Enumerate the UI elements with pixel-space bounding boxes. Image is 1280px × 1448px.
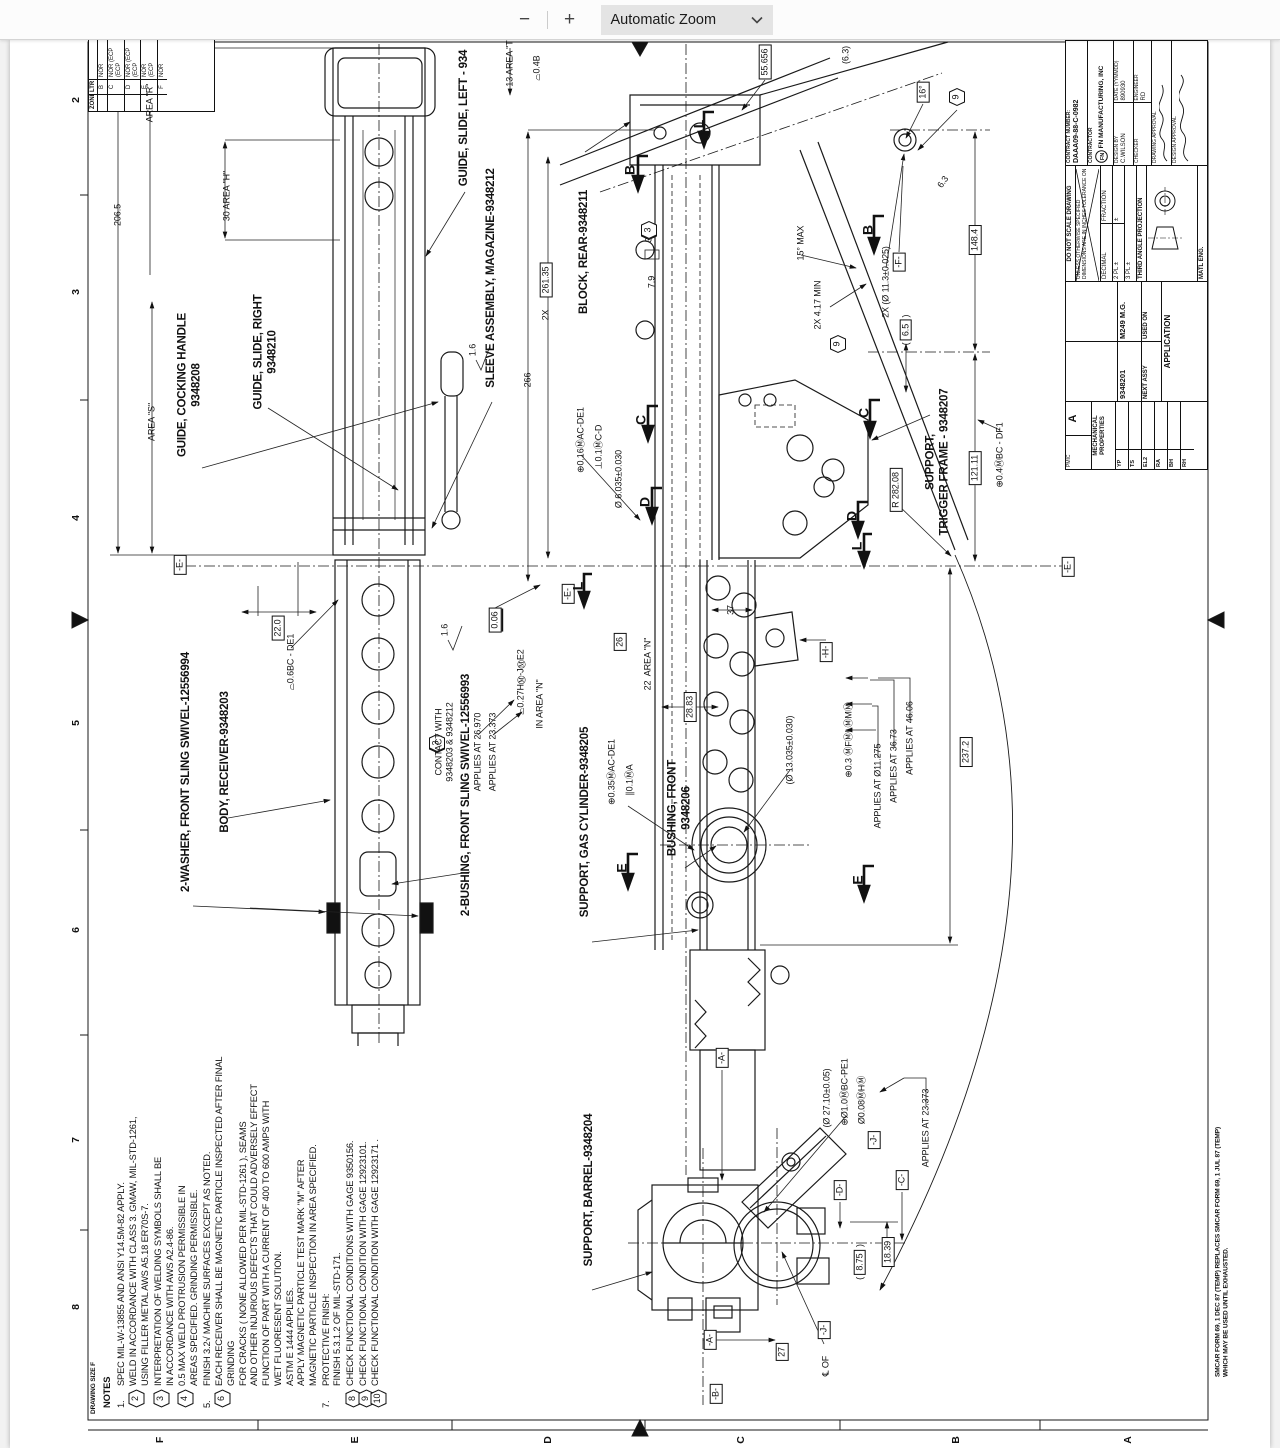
- note-item: 9CHECK FUNCTIONAL CONDITION WITH GAGE 12…: [358, 1046, 370, 1408]
- design-by-value: C.WILSON: [1121, 133, 1127, 163]
- note-flag-hexagon: 3: [153, 1386, 176, 1408]
- engineering-drawing: ZONELTRBNORCNOR (ECP(ECPDNOR (ECP(ECPENO…: [0, 0, 1280, 1448]
- zone-row-label: 8: [70, 1304, 82, 1310]
- datum-h: -H-: [820, 642, 833, 662]
- third-angle-symbol: [1147, 166, 1198, 281]
- note-item: 5.FINISH 3.2√ MACHINE SURFACES EXCEPT AS…: [202, 1046, 214, 1408]
- mech-row: EL2: [1142, 402, 1155, 469]
- pmic-label: PMIC: [1067, 438, 1073, 467]
- datum-d: -D-: [834, 1180, 847, 1200]
- pdf-viewer: − + Automatic Zoom: [0, 0, 1280, 1448]
- pl3-label: 3 PL ±: [1125, 166, 1137, 281]
- contractor-label: CONTRACTOR: [1089, 43, 1095, 163]
- dim-13-035: (Ø 13.035±0.030): [785, 716, 796, 785]
- revision-row: DNOR (ECP(ECP: [125, 39, 142, 111]
- mech-properties-rows: YPTSEL2RABHRH: [1116, 402, 1207, 469]
- datum-j-top: -J-: [868, 1131, 881, 1149]
- dim-22-area-n: 22 AREA "N": [643, 638, 654, 691]
- section-d-left: D: [637, 497, 654, 507]
- revision-row: CNOR (ECP(ECP: [108, 39, 125, 111]
- dim-13-area-t: 13 AREA "T": [505, 37, 516, 86]
- note-item: 6EACH RECEIVER SHALL BE MAGNETIC PARTICL…: [214, 1046, 319, 1408]
- fraction-label: FRACTION: [1101, 166, 1112, 223]
- pm-label: ±: [1113, 166, 1124, 223]
- note-applies-26970: APPLIES AT 26.970: [473, 713, 484, 792]
- section-c-left: C: [633, 415, 650, 425]
- notes-title: NOTES: [102, 1046, 114, 1408]
- design-approval-signature: [1179, 73, 1191, 163]
- zone-col-label: C: [735, 1436, 747, 1443]
- fcf-prof-06: ⌓0.6BC - DE1: [286, 634, 297, 690]
- note-contact: CONTACT WITH 9348203 & 9348212: [433, 702, 454, 781]
- title-block-pmic-section: PMIC A MECHANICAL PROPERTIES YPTSEL2RABH…: [1066, 401, 1207, 469]
- note-applies-23373b: APPLIES AT 23.373: [921, 1089, 932, 1168]
- zoom-level-label: Automatic Zoom: [611, 12, 751, 28]
- part-label-guide-slide-right: GUIDE, SLIDE, RIGHT 9348210: [252, 294, 279, 409]
- pmic-value: A: [1066, 402, 1091, 435]
- mech-row: YP: [1116, 402, 1129, 469]
- fcf-pos-04: ⊕0.4ⓂBC - DF1: [995, 422, 1006, 487]
- note-item: 1.SPEC MIL-W-13855 AND ANSI Y14.5M-82 AP…: [116, 1046, 128, 1408]
- fcf-par-01: ∥0.1ⓂA: [625, 764, 636, 795]
- note-item: 3INTERPRETATION OF WELDING SYMBOLS SHALL…: [153, 1046, 176, 1408]
- zone-col-label: B: [950, 1436, 962, 1443]
- note-cl-of-j: ℄ OF: [821, 1356, 832, 1376]
- part-label-support-trigger: SUPPORT, TRIGGER FRAME - 9348207: [924, 389, 951, 536]
- section-b-right: B: [860, 225, 877, 235]
- datum-f: -F-: [893, 252, 906, 271]
- note-flag-hexagon: 9: [358, 1386, 370, 1408]
- tolerance-note: UNLESS OTHERWISE SPECIFIED DIMENSIONS AR…: [1076, 166, 1101, 281]
- fcf-pos-008: Ø0.08ⓂHⓂ: [857, 1076, 868, 1124]
- finish-1-6-a: 1.6: [440, 624, 451, 636]
- dim-37: 37: [726, 605, 737, 615]
- dim-206-5: 206.5: [113, 204, 124, 226]
- note-flag: 1.: [116, 1386, 128, 1408]
- dim-6-035: Ø 6.035±0.030: [614, 450, 625, 508]
- note-text: INTERPRETATION OF WELDING SYMBOLS SHALL …: [153, 1157, 176, 1386]
- note-text: EACH RECEIVER SHALL BE MAGNETIC PARTICLE…: [214, 1046, 319, 1386]
- note-flag-hexagon: 10: [370, 1386, 382, 1408]
- note-flag: 7.: [321, 1386, 344, 1408]
- matl-eng-label: MATL ENG.: [1198, 166, 1207, 281]
- note-text: FINISH 3.2√ MACHINE SURFACES EXCEPT AS N…: [202, 1152, 214, 1386]
- dim-237-2: 237.2: [960, 737, 973, 767]
- note-flag-hexagon: 4: [177, 1386, 200, 1408]
- contractor-value: FN MANUFACTURING, INC: [1098, 66, 1105, 149]
- toolbar-divider: [547, 11, 548, 29]
- section-c-right: C: [856, 408, 873, 418]
- part-label-block-rear: BLOCK, REAR-9348211: [578, 190, 592, 314]
- dim-261-35: 261.35: [540, 263, 553, 298]
- dim-6-3-ref: (6.3): [841, 46, 852, 64]
- finish-1-6-b: 1.6: [468, 344, 479, 356]
- engineer-value: RD: [1141, 92, 1147, 101]
- zone-row-label: 4: [70, 515, 82, 521]
- zone-row-label: 7: [70, 1137, 82, 1143]
- revision-row: BNOR: [98, 39, 108, 111]
- date-value: 890930: [1121, 80, 1127, 100]
- notes-block: NOTES 1.SPEC MIL-W-13855 AND ANSI Y14.5M…: [102, 1046, 420, 1408]
- dim-55-656: 55.656: [759, 45, 772, 80]
- dim-27-10: (Ø 27.10±0.05): [822, 1068, 833, 1127]
- third-angle-label: THIRD ANGLE PROJECTION: [1137, 166, 1147, 281]
- note-applies-4606: APPLIES AT 46.06: [905, 701, 916, 775]
- title-block-tolerance-section: DO NOT SCALE DRAWING UNLESS OTHERWISE SP…: [1066, 165, 1207, 281]
- drawing-size-note: DRAWING SIZE F: [90, 1362, 98, 1414]
- note-flag-hexagon: 8: [345, 1386, 357, 1408]
- zone-row-label: 5: [70, 720, 82, 726]
- part-label-washer-front-sling: 2-WASHER, FRONT SLING SWIVEL-12556994: [180, 652, 194, 892]
- datum-e-left: -E-: [174, 555, 187, 575]
- flag-note-9b: 9: [830, 335, 847, 354]
- drawing-approval-signature: [1159, 83, 1169, 163]
- zone-col-label: E: [349, 1437, 361, 1444]
- note-text: WELD IN ACCORDANCE WITH CLASS 3. GMAW, M…: [128, 1117, 151, 1386]
- note-applies-11275: APPLIES AT Ø11.275: [873, 744, 884, 829]
- dim-area-r: AREA "R": [145, 84, 156, 123]
- fcf-pos-035: ⊕0.35ⓂAC-DE1: [607, 739, 618, 805]
- note-item: 40.5 MAX WELD PROTRUSION PERMISSIBLE IN …: [177, 1046, 200, 1408]
- dim-18-39: 18.39: [882, 1237, 895, 1267]
- dim-266: 266: [523, 373, 534, 388]
- dim-11-3: 2X (Ø 11.3±0.025): [881, 246, 892, 318]
- fcf-perp-01: ⊥0.1ⓂC-D: [594, 425, 605, 470]
- title-block: PMIC A MECHANICAL PROPERTIES YPTSEL2RABH…: [1065, 40, 1208, 470]
- dim-16-deg: 16°: [917, 81, 930, 102]
- zoom-out-button[interactable]: −: [508, 6, 542, 34]
- part-label-guide-cocking-handle: GUIDE, COCKING HANDLE 9348208: [176, 313, 203, 457]
- datum-a-bottom: -A-: [704, 1330, 717, 1350]
- fcf-pos-10: ⊕Ø1.0ⓂBC-PE1: [840, 1058, 851, 1125]
- zoom-in-button[interactable]: +: [553, 6, 587, 34]
- zone-col-label: D: [542, 1436, 554, 1443]
- application-label: APPLICATION: [1162, 282, 1207, 401]
- part-label-support-gas-cyl: SUPPORT, GAS CYLINDER-9348205: [579, 727, 593, 917]
- fcf-pos-016: ⊕0.16ⓂAC-DE1: [576, 407, 587, 473]
- note-flag: 5.: [202, 1386, 214, 1408]
- fcf-04-b: ⌓0.4B: [532, 55, 543, 80]
- section-d-right: D: [844, 511, 861, 521]
- dim-121-11: 121.11: [969, 451, 982, 485]
- decimal-label: DECIMAL: [1101, 223, 1112, 281]
- title-block-contract-section: CONTRACT NUMBER: DAAA09-88-C-0982 CONTRA…: [1066, 41, 1207, 165]
- contract-number-value: DAAA09-88-C-0982: [1073, 100, 1080, 163]
- zone-row-label: 2: [70, 97, 82, 103]
- section-l-top: L: [691, 120, 708, 128]
- crossed-out-lines: [1076, 169, 1099, 281]
- section-e-right: E: [850, 875, 867, 884]
- dim-area-s: AREA "S": [147, 403, 158, 441]
- note-text: SPEC MIL-W-13855 AND ANSI Y14.5M-82 APPL…: [116, 1182, 128, 1386]
- mech-row: RA: [1155, 402, 1168, 469]
- fcf-pos-03: ⊕0.3 ⓂFⓂLⓂMⓂ: [844, 702, 855, 777]
- notes-list: 1.SPEC MIL-W-13855 AND ANSI Y14.5M-82 AP…: [116, 1046, 382, 1408]
- form-number-note: SMCAR FORM 69, 1 DEC 87 (TEMP) REPLACES …: [1214, 1127, 1229, 1377]
- part-label-support-barrel: SUPPORT, BARREL-9348204: [583, 1114, 597, 1267]
- do-not-scale-label: DO NOT SCALE DRAWING: [1066, 166, 1076, 281]
- section-l-mid: L: [570, 582, 587, 590]
- datum-c: -C-: [896, 1170, 909, 1190]
- used-on-value: M249 M.G.: [1118, 282, 1141, 341]
- dim-6-5: ( 6.5 ): [901, 315, 912, 346]
- zone-row-label: 6: [70, 927, 82, 933]
- note-item: 10CHECK FUNCTIONAL CONDITION WITH GAGE 1…: [370, 1046, 382, 1408]
- pl2-label: 2 PL ±: [1113, 223, 1124, 281]
- dim-2x: 2X: [541, 310, 552, 321]
- part-label-bushing-sling: 2-BUSHING, FRONT SLING SWIVEL-12556993: [460, 674, 474, 916]
- note-item: 8CHECK FUNCTIONAL CONDITIONS WITH GAGE 9…: [345, 1046, 357, 1408]
- next-assy-value: 9348201: [1118, 341, 1141, 401]
- mech-properties-label: MECHANICAL PROPERTIES: [1092, 402, 1116, 469]
- zone-row-label: 3: [70, 289, 82, 295]
- zone-col-label: A: [1122, 1436, 1134, 1443]
- flag-note-3a: 3: [641, 221, 658, 240]
- title-block-application-section: 9348201 M249 M.G. NEXT ASSY USED ON APPL…: [1066, 281, 1207, 401]
- datum-a-top: -A-: [716, 1048, 729, 1068]
- datum-b: -B-: [710, 1384, 723, 1404]
- section-b-left: B: [622, 165, 639, 175]
- note-text: PROTECTIVE FINISH: FINISH 5.3.1.2 OF MIL…: [321, 1253, 344, 1386]
- note-in-area-n: IN AREA "N": [535, 679, 546, 728]
- dim-15-max: 15° MAX: [796, 226, 807, 261]
- section-l-right: L: [849, 542, 866, 550]
- dim-22-0: 22.0: [272, 615, 285, 640]
- note-text: CHECK FUNCTIONAL CONDITION WITH GAGE 129…: [370, 1139, 382, 1386]
- next-assy-label: NEXT ASSY: [1142, 341, 1161, 401]
- revision-row: FNOR: [158, 39, 167, 111]
- part-label-bushing-front: BUSHING, FRONT 9348206: [666, 760, 693, 856]
- dim-26: 26: [614, 633, 627, 651]
- dim-27: 27: [776, 1343, 789, 1361]
- section-e-left: E: [614, 863, 631, 872]
- used-on-label: USED ON: [1142, 282, 1161, 341]
- zoom-level-dropdown[interactable]: Automatic Zoom: [601, 5, 773, 35]
- note-item: 2WELD IN ACCORDANCE WITH CLASS 3. GMAW, …: [128, 1046, 151, 1408]
- note-item: 7.PROTECTIVE FINISH: FINISH 5.3.1.2 OF M…: [321, 1046, 344, 1408]
- dim-0-06: 0.06: [489, 607, 502, 632]
- dim-8-75: ( 8.75 ): [855, 1244, 866, 1280]
- pdf-toolbar: − + Automatic Zoom: [0, 0, 1280, 40]
- dim-28-83: 28.83: [684, 692, 697, 722]
- dim-4-17-min: 2X 4.17 MIN: [813, 281, 824, 330]
- checker-label: CHECKER: [1135, 106, 1141, 164]
- dim-30-area-h: 30 AREA "H": [222, 171, 233, 221]
- datum-j-bottom: -J-: [818, 1321, 831, 1339]
- note-flag-hexagon: 2: [128, 1386, 151, 1408]
- chevron-down-icon: [751, 16, 763, 24]
- note-text: 0.5 MAX WELD PROTRUSION PERMISSIBLE IN A…: [177, 1186, 200, 1386]
- note-applies-23373a: APPLIES AT 23.373: [488, 713, 499, 792]
- zone-col-label: F: [154, 1437, 166, 1443]
- mech-row: BH: [1168, 402, 1181, 469]
- part-label-body-receiver: BODY, RECEIVER-9348203: [219, 691, 233, 832]
- fcf-prof-027: ⌓0.27HⓂ-JⓂE2: [516, 649, 527, 714]
- flag-note-9a: 9: [949, 88, 966, 107]
- note-applies-3673: APPLIES AT 36.73: [889, 729, 900, 803]
- note-flag-hexagon: 6: [214, 1386, 319, 1408]
- part-label-guide-slide-left: GUIDE, SLIDE, LEFT - 934: [458, 50, 472, 186]
- note-text: CHECK FUNCTIONAL CONDITIONS WITH GAGE 93…: [345, 1141, 357, 1386]
- svg-text:FN: FN: [1100, 153, 1106, 160]
- note-text: CHECK FUNCTIONAL CONDITION WITH GAGE 129…: [358, 1142, 370, 1386]
- mech-row: TS: [1129, 402, 1142, 469]
- datum-e-right: -E-: [1062, 557, 1075, 577]
- dim-r-282-08: R 282.08: [890, 468, 903, 512]
- fn-logo: FN: [1095, 150, 1108, 163]
- dim-148-4: 148.4: [969, 225, 982, 255]
- mech-row: RH: [1181, 402, 1194, 469]
- part-label-sleeve-assembly: SLEEVE ASSEMBLY, MAGAZINE-9348212: [485, 168, 499, 387]
- dim-7-9: 7.9: [647, 276, 658, 288]
